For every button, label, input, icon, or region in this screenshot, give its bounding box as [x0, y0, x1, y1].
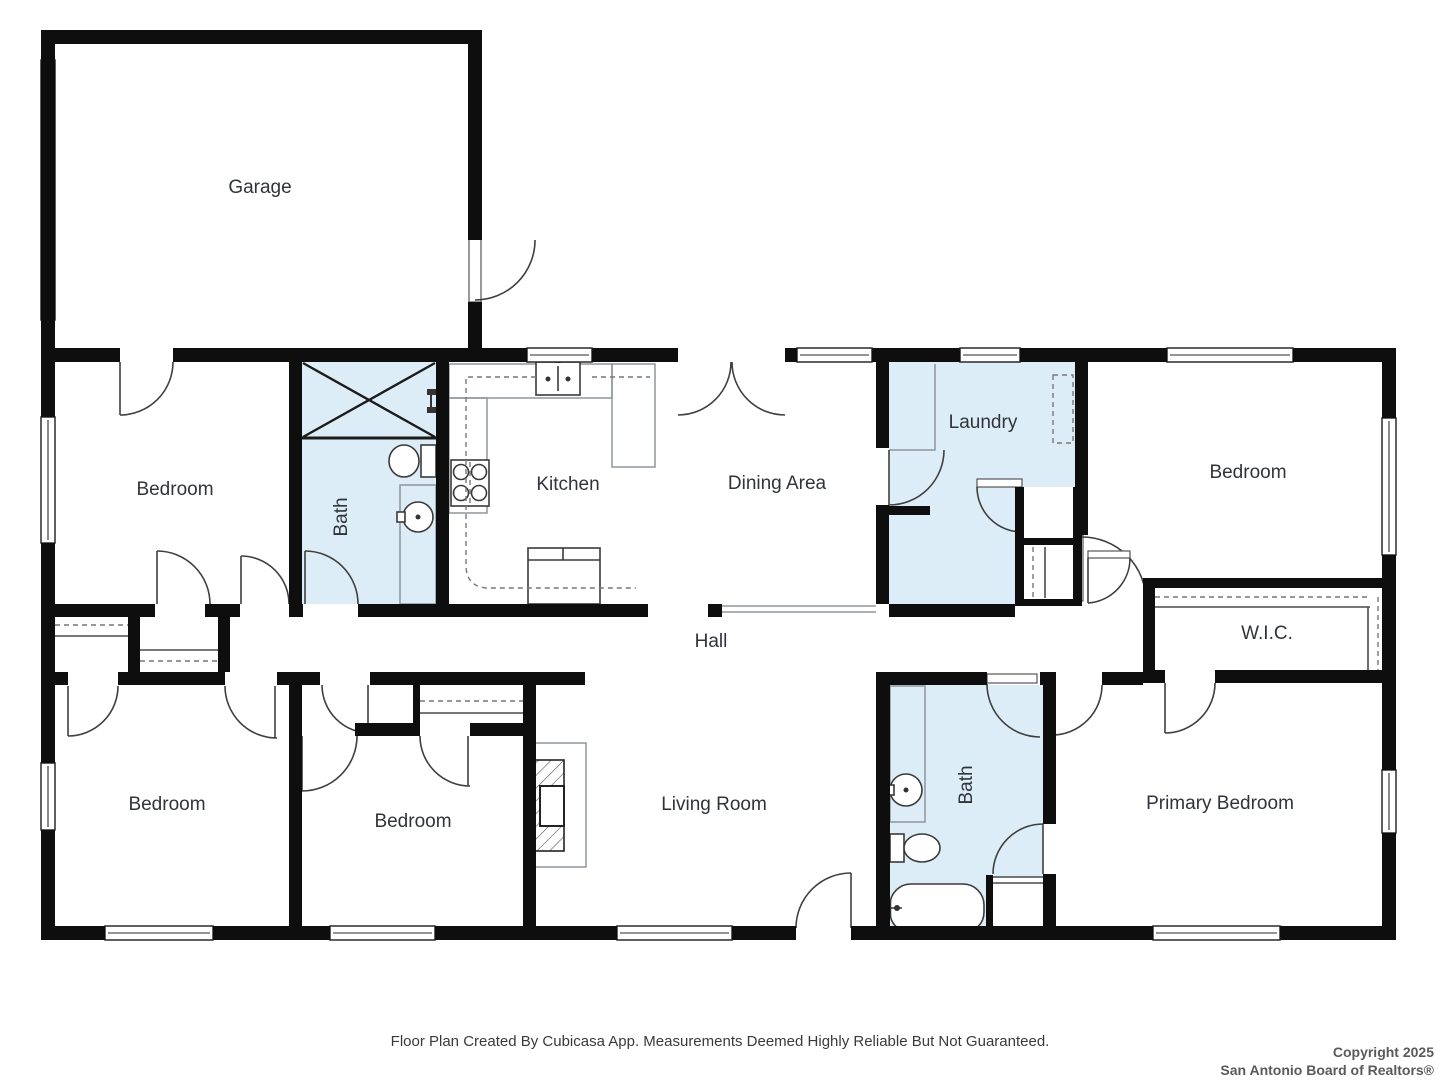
room-label-bedroom-top-left: Bedroom: [136, 479, 213, 500]
copyright-text: Copyright 2025 San Antonio Board of Real…: [1220, 1044, 1434, 1079]
fireplace-icon: [530, 743, 586, 867]
room-label-kitchen: Kitchen: [536, 474, 599, 495]
window: [1382, 770, 1396, 833]
room-label-bedroom-bottom-mid: Bedroom: [374, 811, 451, 832]
window: [41, 763, 55, 830]
room-label-laundry: Laundry: [949, 412, 1018, 433]
room-label-primary-bedroom: Primary Bedroom: [1146, 793, 1294, 814]
room-label-dining: Dining Area: [728, 473, 827, 494]
garage-door-leaf: [469, 238, 481, 302]
floor-threshold: [722, 606, 876, 612]
floor-plan-page: Garage Bedroom Bath Kitchen Dining Area …: [0, 0, 1440, 1080]
window: [1382, 418, 1396, 555]
bathtub-icon: [890, 884, 984, 933]
window: [1153, 926, 1280, 940]
bath-closet: [993, 877, 1043, 926]
room-label-bath-bottom: Bath: [956, 765, 977, 804]
toilet-icon: [389, 445, 436, 477]
bath-top-floor: [302, 362, 436, 604]
window: [617, 926, 732, 940]
room-label-bedroom-top-right: Bedroom: [1209, 462, 1286, 483]
fridge-icon: [528, 548, 600, 604]
wet-area-fills: [302, 362, 1075, 926]
garage-door-arc: [475, 240, 535, 300]
window: [960, 348, 1020, 362]
room-label-bath-top: Bath: [331, 497, 352, 536]
room-label-bedroom-bottom-left: Bedroom: [128, 794, 205, 815]
window: [797, 348, 872, 362]
stove-icon: [451, 460, 489, 506]
copyright-line2: San Antonio Board of Realtors®: [1220, 1062, 1434, 1080]
copyright-line1: Copyright 2025: [1220, 1044, 1434, 1062]
room-label-living-room: Living Room: [661, 794, 767, 815]
toilet-icon-2: [890, 834, 940, 862]
window: [330, 926, 435, 940]
window: [1167, 348, 1293, 362]
room-label-hall: Hall: [695, 631, 728, 652]
floor-plan-svg: Garage Bedroom Bath Kitchen Dining Area …: [0, 0, 1440, 1080]
room-label-garage: Garage: [228, 177, 291, 198]
window: [527, 348, 592, 362]
window: [41, 417, 55, 543]
window: [105, 926, 213, 940]
room-label-wic: W.I.C.: [1241, 623, 1293, 644]
